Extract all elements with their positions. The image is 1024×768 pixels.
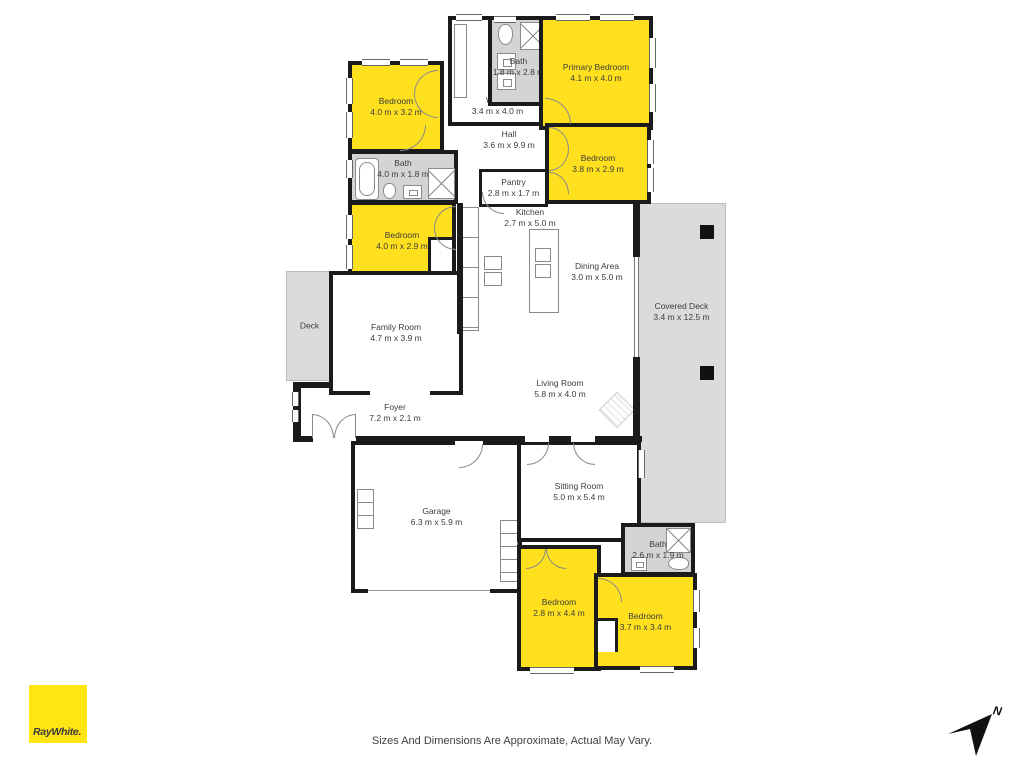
room-label: Deck: [287, 320, 332, 331]
room-dims: 5.8 m x 4.0 m: [514, 389, 606, 400]
room-label: Covered Deck 3.4 m x 12.5 m: [638, 301, 725, 323]
sink-icon: [497, 73, 516, 90]
door-opening: [525, 436, 549, 442]
toilet-icon: [668, 557, 689, 570]
sink-icon: [403, 185, 422, 199]
room-family: Family Room 4.7 m x 3.9 m: [329, 271, 463, 395]
room-label-hall: Hall 3.6 m x 9.9 m: [463, 129, 555, 151]
toilet-icon: [383, 183, 396, 199]
room-label-living: Living Room 5.8 m x 4.0 m: [514, 378, 606, 400]
room-name: Family Room: [333, 322, 459, 333]
window: [693, 590, 700, 612]
window: [362, 59, 390, 66]
window: [292, 392, 299, 406]
room-dims: 3.0 m x 5.0 m: [551, 272, 643, 283]
room-name: Sitting Room: [521, 480, 637, 491]
window: [494, 16, 516, 23]
room-dims: 7.2 m x 2.1 m: [349, 413, 441, 424]
entry-door-arc: [312, 414, 334, 438]
room-name: Bedroom: [521, 597, 597, 608]
room-name: Garage: [355, 506, 518, 517]
room-bath-top: Bath 1.8 m x 2.8 m: [488, 20, 545, 106]
window: [346, 78, 353, 104]
window: [456, 14, 482, 21]
window: [346, 245, 353, 269]
room-label: Family Room 4.7 m x 3.9 m: [333, 322, 459, 344]
sink-icon: [497, 53, 516, 70]
closet-notch: [598, 618, 618, 652]
bathtub-inner: [359, 162, 375, 196]
shower-icon: [428, 168, 455, 199]
window: [693, 628, 700, 648]
room-name: Dining Area: [551, 261, 643, 272]
deck-post: [700, 366, 714, 380]
wardrobe-closet: [454, 24, 467, 98]
window: [556, 14, 590, 21]
room-name: Deck: [287, 320, 332, 331]
room-label: Sitting Room 5.0 m x 5.4 m: [521, 480, 637, 502]
window: [640, 666, 674, 673]
window: [346, 160, 353, 178]
room-dims: 3.6 m x 9.9 m: [463, 140, 555, 151]
room-name: Hall: [463, 129, 555, 140]
wall: [633, 203, 640, 257]
kitchen-appliance: [484, 272, 502, 286]
room-label-dining: Dining Area 3.0 m x 5.0 m: [551, 261, 643, 283]
toilet-icon: [498, 24, 513, 45]
shower-icon: [666, 528, 691, 553]
wall: [356, 436, 642, 442]
disclaimer-text: Sizes And Dimensions Are Approximate, Ac…: [0, 735, 1024, 747]
room-name: Living Room: [514, 378, 606, 389]
room-dims: 4.1 m x 4.0 m: [543, 73, 649, 84]
compass: N: [946, 704, 1004, 762]
wall: [457, 203, 463, 334]
room-name: Primary Bedroom: [543, 62, 649, 73]
sliding-door-window: [634, 257, 639, 357]
kitchen-counter: [461, 207, 479, 331]
cooktop-icon: [535, 248, 551, 262]
room-dims: 4.7 m x 3.9 m: [333, 333, 459, 344]
window: [638, 450, 645, 478]
room-label: Bedroom 2.8 m x 4.4 m: [521, 597, 597, 619]
wall: [293, 436, 313, 442]
wall: [633, 357, 640, 442]
window: [346, 112, 353, 138]
room-name: Covered Deck: [638, 301, 725, 312]
room-label: Garage 6.3 m x 5.9 m: [355, 506, 518, 528]
window: [600, 14, 634, 21]
room-dims: 6.3 m x 5.9 m: [355, 517, 518, 528]
window: [649, 38, 656, 68]
room-dims: 3.8 m x 2.9 m: [549, 164, 647, 175]
window: [647, 168, 654, 192]
kitchen-appliance: [484, 256, 502, 270]
garage-cabinets: [500, 520, 518, 582]
garage-door-line: [368, 590, 490, 591]
room-dims: 2.7 m x 5.0 m: [484, 218, 576, 229]
door-opening: [571, 436, 595, 442]
sink-icon: [535, 264, 551, 278]
room-dims: 2.8 m x 4.4 m: [521, 608, 597, 619]
garage-shelves: [357, 489, 374, 529]
window: [649, 84, 656, 112]
room-dims: 3.4 m x 4.0 m: [452, 106, 543, 117]
wall-opening: [370, 391, 430, 395]
room-dims: 3.4 m x 12.5 m: [638, 312, 725, 323]
floorplan-canvas: Covered Deck 3.4 m x 12.5 m Deck W.I.C. …: [0, 0, 1024, 768]
room-bath-bottom: Bath 2.6 m x 1.9 m: [621, 523, 695, 576]
room-name: Foyer: [349, 402, 441, 413]
window: [400, 59, 428, 66]
window: [647, 140, 654, 164]
room-dims: 5.0 m x 5.4 m: [521, 492, 637, 503]
window: [530, 667, 574, 674]
room-garage: Garage 6.3 m x 5.9 m: [351, 441, 522, 593]
room-label-foyer: Foyer 7.2 m x 2.1 m: [349, 402, 441, 424]
window: [292, 410, 299, 422]
bathtub-icon: [355, 158, 379, 200]
window: [346, 215, 353, 239]
room-label: Primary Bedroom 4.1 m x 4.0 m: [543, 62, 649, 84]
deck-post: [700, 225, 714, 239]
room-name: Pantry: [482, 177, 545, 188]
covered-deck-area: Covered Deck 3.4 m x 12.5 m: [637, 203, 726, 523]
sink-icon: [631, 557, 647, 571]
room-bath-left: Bath 4.0 m x 1.8 m: [348, 150, 458, 204]
deck-area: Deck: [286, 271, 333, 381]
entry-door-arc: [334, 414, 356, 438]
